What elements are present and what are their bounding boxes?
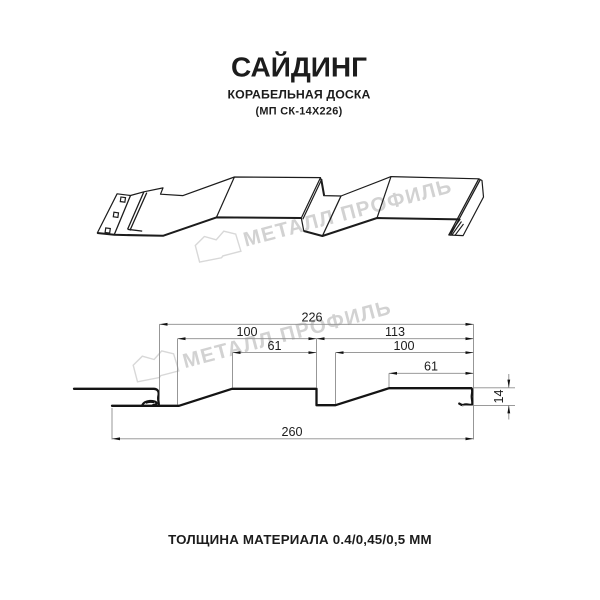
svg-text:САЙДИНГ: САЙДИНГ [231,51,367,83]
svg-text:100: 100 [236,325,257,339]
svg-text:14: 14 [492,389,506,403]
svg-text:100: 100 [393,339,414,353]
svg-text:61: 61 [424,360,438,374]
svg-text:(МП СК-14Х226): (МП СК-14Х226) [255,106,342,118]
svg-text:61: 61 [267,339,281,353]
svg-text:КОРАБЕЛЬНАЯ ДОСКА: КОРАБЕЛЬНАЯ ДОСКА [228,88,371,102]
svg-text:113: 113 [385,325,405,339]
svg-text:260: 260 [281,425,302,439]
svg-text:ТОЛЩИНА МАТЕРИАЛА 0.4/0,45/0,5: ТОЛЩИНА МАТЕРИАЛА 0.4/0,45/0,5 ММ [168,532,432,547]
svg-text:226: 226 [301,311,322,325]
